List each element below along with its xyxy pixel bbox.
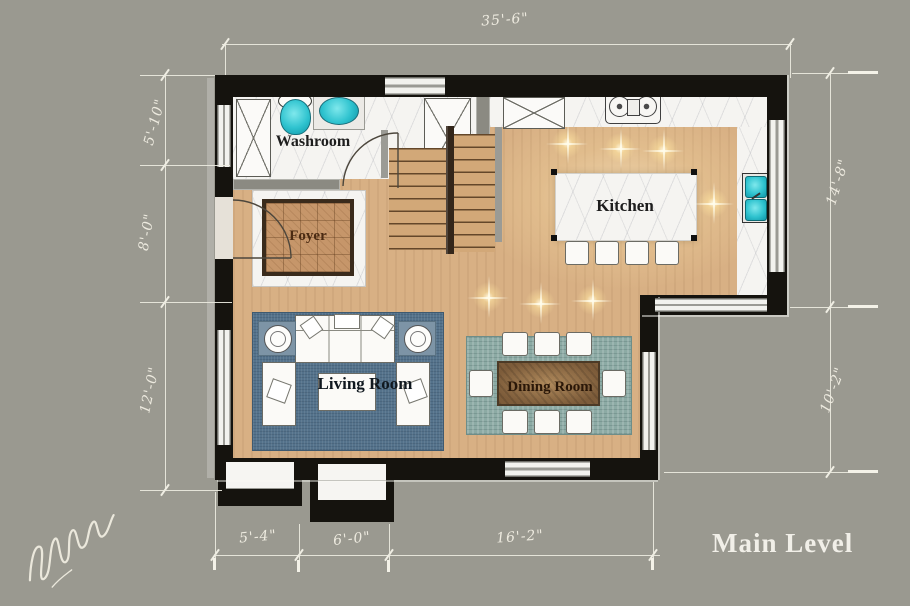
sparkle-icon — [523, 286, 557, 320]
toilet — [277, 92, 313, 134]
dim-label-left-lower: 12'-0" — [137, 365, 163, 415]
plan-title: Main Level — [712, 528, 853, 559]
exterior-highlight — [642, 315, 787, 317]
sofa-pillow-right — [371, 316, 395, 340]
window-kitchen-right — [769, 120, 785, 272]
dim-label-top-width: 35'-6" — [481, 10, 530, 29]
dim-label-bottom-middle: 6'-0" — [332, 529, 371, 549]
sofa-center-cushion — [334, 314, 360, 329]
washroom-label: Washroom — [233, 133, 393, 151]
kitchen-sink-basin-bottom — [745, 199, 767, 221]
window-washroom-left — [217, 105, 231, 167]
dim-ext — [140, 302, 232, 303]
dim-ext — [225, 44, 226, 75]
living-room-label: Living Room — [290, 374, 440, 394]
bay-window-large-glass — [318, 464, 386, 500]
dim-ext — [389, 524, 390, 560]
stairs-left-flight — [389, 148, 446, 250]
dim-dash — [213, 558, 216, 570]
bar-stool — [625, 241, 649, 265]
dim-ext — [215, 492, 216, 558]
sofa — [295, 315, 395, 363]
dim-ext — [299, 524, 300, 560]
stairs-center-rail — [446, 126, 454, 254]
window-living-left — [217, 330, 231, 445]
window-bottom — [505, 461, 590, 477]
dining-chair — [502, 332, 528, 356]
window-dining-right — [642, 352, 656, 450]
exterior-highlight — [787, 75, 789, 317]
bay-window-small-glass — [226, 462, 294, 489]
sparkle-icon — [471, 280, 505, 314]
dim-dash — [848, 470, 878, 473]
washroom-south-wall-left — [233, 179, 340, 190]
dim-label-left-middle: 8'-0" — [136, 212, 158, 252]
exterior-highlight — [658, 297, 660, 480]
dim-ext — [790, 44, 791, 78]
kitchen-label: Kitchen — [555, 196, 695, 216]
stairs-right-sidewall — [495, 110, 502, 242]
dim-dash — [651, 558, 654, 570]
bar-stool — [595, 241, 619, 265]
dim-ext — [664, 472, 878, 473]
side-table-right — [398, 321, 436, 356]
sparkle-icon — [575, 283, 609, 317]
exterior-highlight — [217, 480, 658, 482]
window-top — [385, 77, 445, 95]
armchair-left — [262, 362, 296, 426]
island-corner-mark — [551, 169, 557, 175]
dim-label-bottom-left: 5'-4" — [238, 527, 277, 546]
dining-chair — [566, 332, 592, 356]
foyer-entry-opening — [215, 197, 233, 259]
dim-line-top — [222, 44, 792, 45]
dim-label-right-upper: 14'-8" — [823, 157, 852, 207]
dim-line-left — [165, 75, 166, 490]
dim-ext — [140, 165, 230, 166]
dim-label-bottom-right: 16'-2" — [496, 527, 545, 546]
dining-chair — [534, 410, 560, 434]
sofa-pillow-left — [300, 316, 324, 340]
foyer-label: Foyer — [252, 228, 364, 245]
wall-top — [215, 75, 785, 97]
dining-chair — [502, 410, 528, 434]
dim-dash — [848, 305, 878, 308]
island-corner-mark — [551, 235, 557, 241]
floor-plan-canvas: Washroom Foyer Kitchen Living Room Dinin… — [0, 0, 910, 606]
kitchen-sink-unit — [742, 173, 770, 223]
window-step — [655, 298, 767, 312]
dining-chair — [566, 410, 592, 434]
stove-oven — [627, 99, 640, 116]
armchair-right — [396, 362, 430, 426]
dim-dash — [297, 560, 300, 572]
dim-ext — [653, 482, 654, 558]
bar-stool — [565, 241, 589, 265]
sparkle-icon — [603, 131, 637, 165]
dim-dash — [848, 71, 878, 74]
kitchen-fridge-cabinet — [503, 97, 565, 129]
dining-chair — [534, 332, 560, 356]
stairs-right-flight — [454, 134, 495, 252]
exterior-highlight — [207, 78, 214, 478]
dim-dash — [387, 560, 390, 572]
island-corner-mark — [691, 235, 697, 241]
sparkle-icon — [696, 186, 730, 220]
sparkle-icon — [646, 133, 680, 167]
table-lamp-left — [264, 325, 292, 353]
sparkle-icon — [550, 126, 584, 160]
dim-label-right-lower: 10'-2" — [817, 365, 848, 415]
dim-ext — [140, 75, 215, 76]
dim-ext — [140, 490, 222, 491]
toilet-bowl — [280, 99, 311, 135]
island-corner-mark — [691, 169, 697, 175]
side-table-left — [258, 321, 296, 356]
signature-icon — [20, 515, 127, 592]
dining-room-label: Dining Room — [470, 379, 630, 396]
armchair-left-pillow — [266, 378, 292, 404]
washroom-sink — [319, 97, 359, 125]
dim-line-bottom — [215, 555, 660, 556]
bar-stool — [655, 241, 679, 265]
table-lamp-right — [404, 325, 432, 353]
